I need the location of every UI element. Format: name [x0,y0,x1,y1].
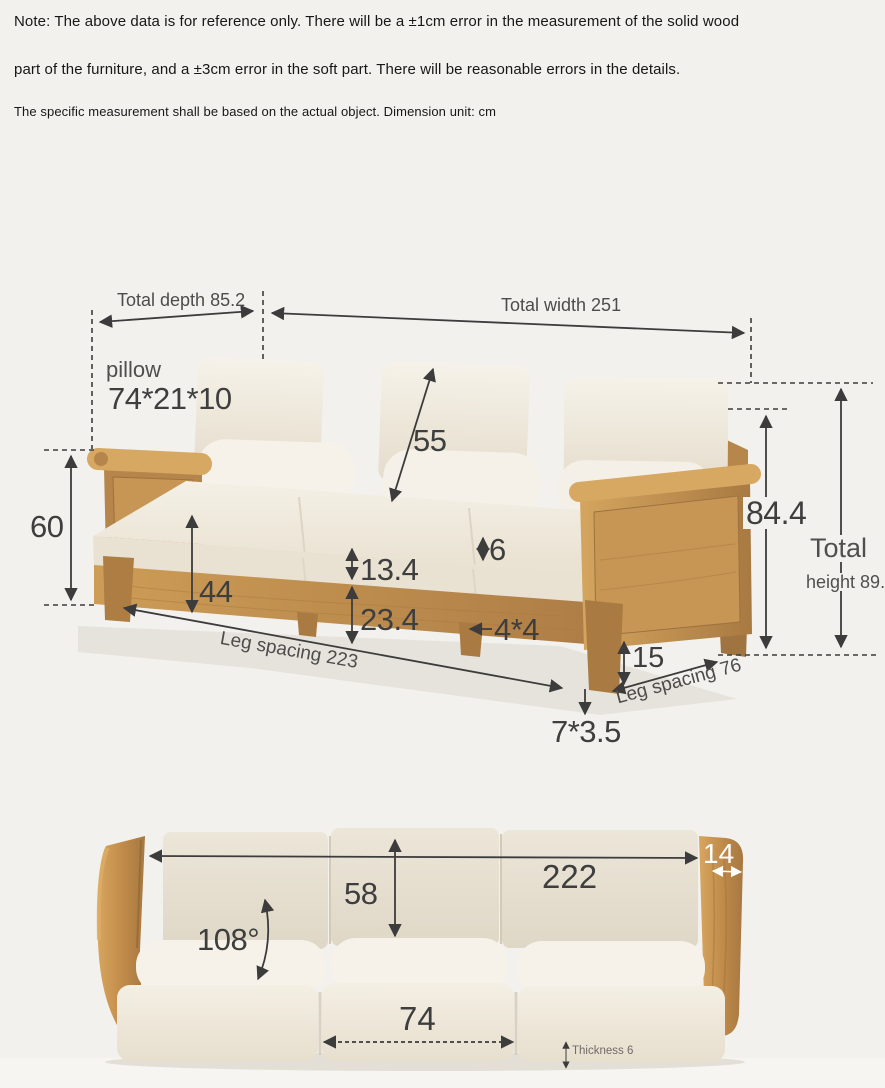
product-dimension-sheet: Note: The above data is for reference on… [0,0,885,1088]
backrest-angle-value: 108° [197,924,259,955]
pillow-label: pillow [106,359,161,381]
backrest-height-value: 58 [344,878,377,909]
total-height-word: Total [807,535,870,562]
mat-thickness-label: Thickness 6 [572,1046,633,1058]
foot-size-value: 7*3.5 [551,716,621,747]
cushion-rise-value: 6 [489,534,506,565]
sofa-front-view-drawing [0,828,885,1088]
middle-leg-size-value: 4*4 [494,614,539,645]
armrest-thickness-value: 14 [703,840,734,868]
sofa-dimension-illustration [0,0,885,1088]
inner-width-value: 222 [542,860,597,893]
seat-height-value: 44 [199,576,232,607]
backrest-cushion-height-value: 55 [413,425,446,456]
pillow-size-value: 74*21*10 [108,383,232,414]
seat-cushion-thickness-value: 13.4 [360,554,418,585]
total-height-value: height 89.2 [803,573,885,591]
back-height-value: 84.4 [743,497,809,529]
total-depth-label: Total depth 85.2 [117,291,245,309]
armrest-height-value: 60 [30,511,63,542]
leg-height-value: 15 [632,644,664,673]
apron-height-value: 23.4 [360,604,418,635]
seat-cushion-width-value: 74 [399,1002,436,1035]
total-width-label: Total width 251 [501,296,621,314]
